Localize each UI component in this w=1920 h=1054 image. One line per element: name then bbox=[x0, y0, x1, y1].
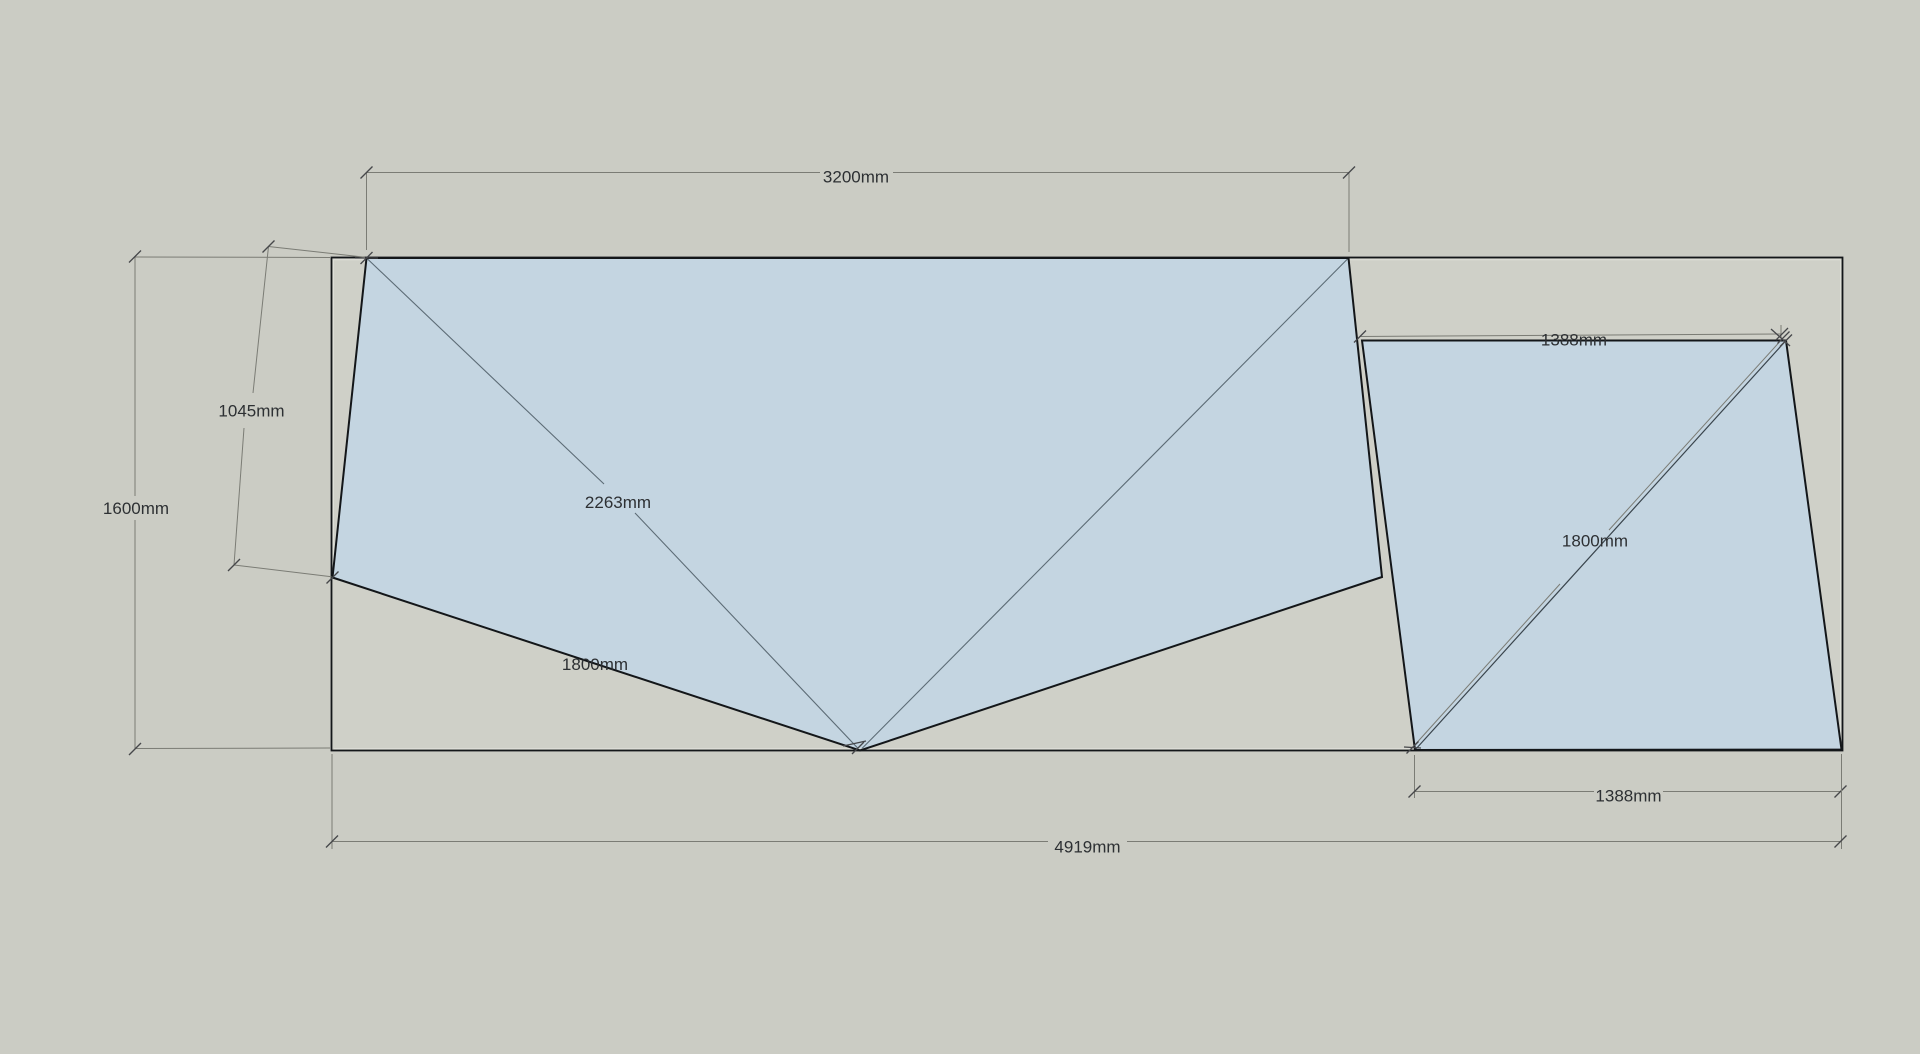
svg-text:1600mm: 1600mm bbox=[103, 499, 169, 518]
svg-text:1800mm: 1800mm bbox=[1562, 532, 1628, 551]
svg-text:2263mm: 2263mm bbox=[585, 493, 651, 512]
svg-text:3200mm: 3200mm bbox=[823, 168, 889, 187]
svg-text:4919mm: 4919mm bbox=[1054, 838, 1120, 857]
svg-text:1045mm: 1045mm bbox=[218, 402, 284, 421]
svg-text:1388mm: 1388mm bbox=[1595, 787, 1661, 806]
svg-text:1388mm: 1388mm bbox=[1541, 331, 1607, 350]
svg-text:1800mm: 1800mm bbox=[562, 655, 628, 674]
